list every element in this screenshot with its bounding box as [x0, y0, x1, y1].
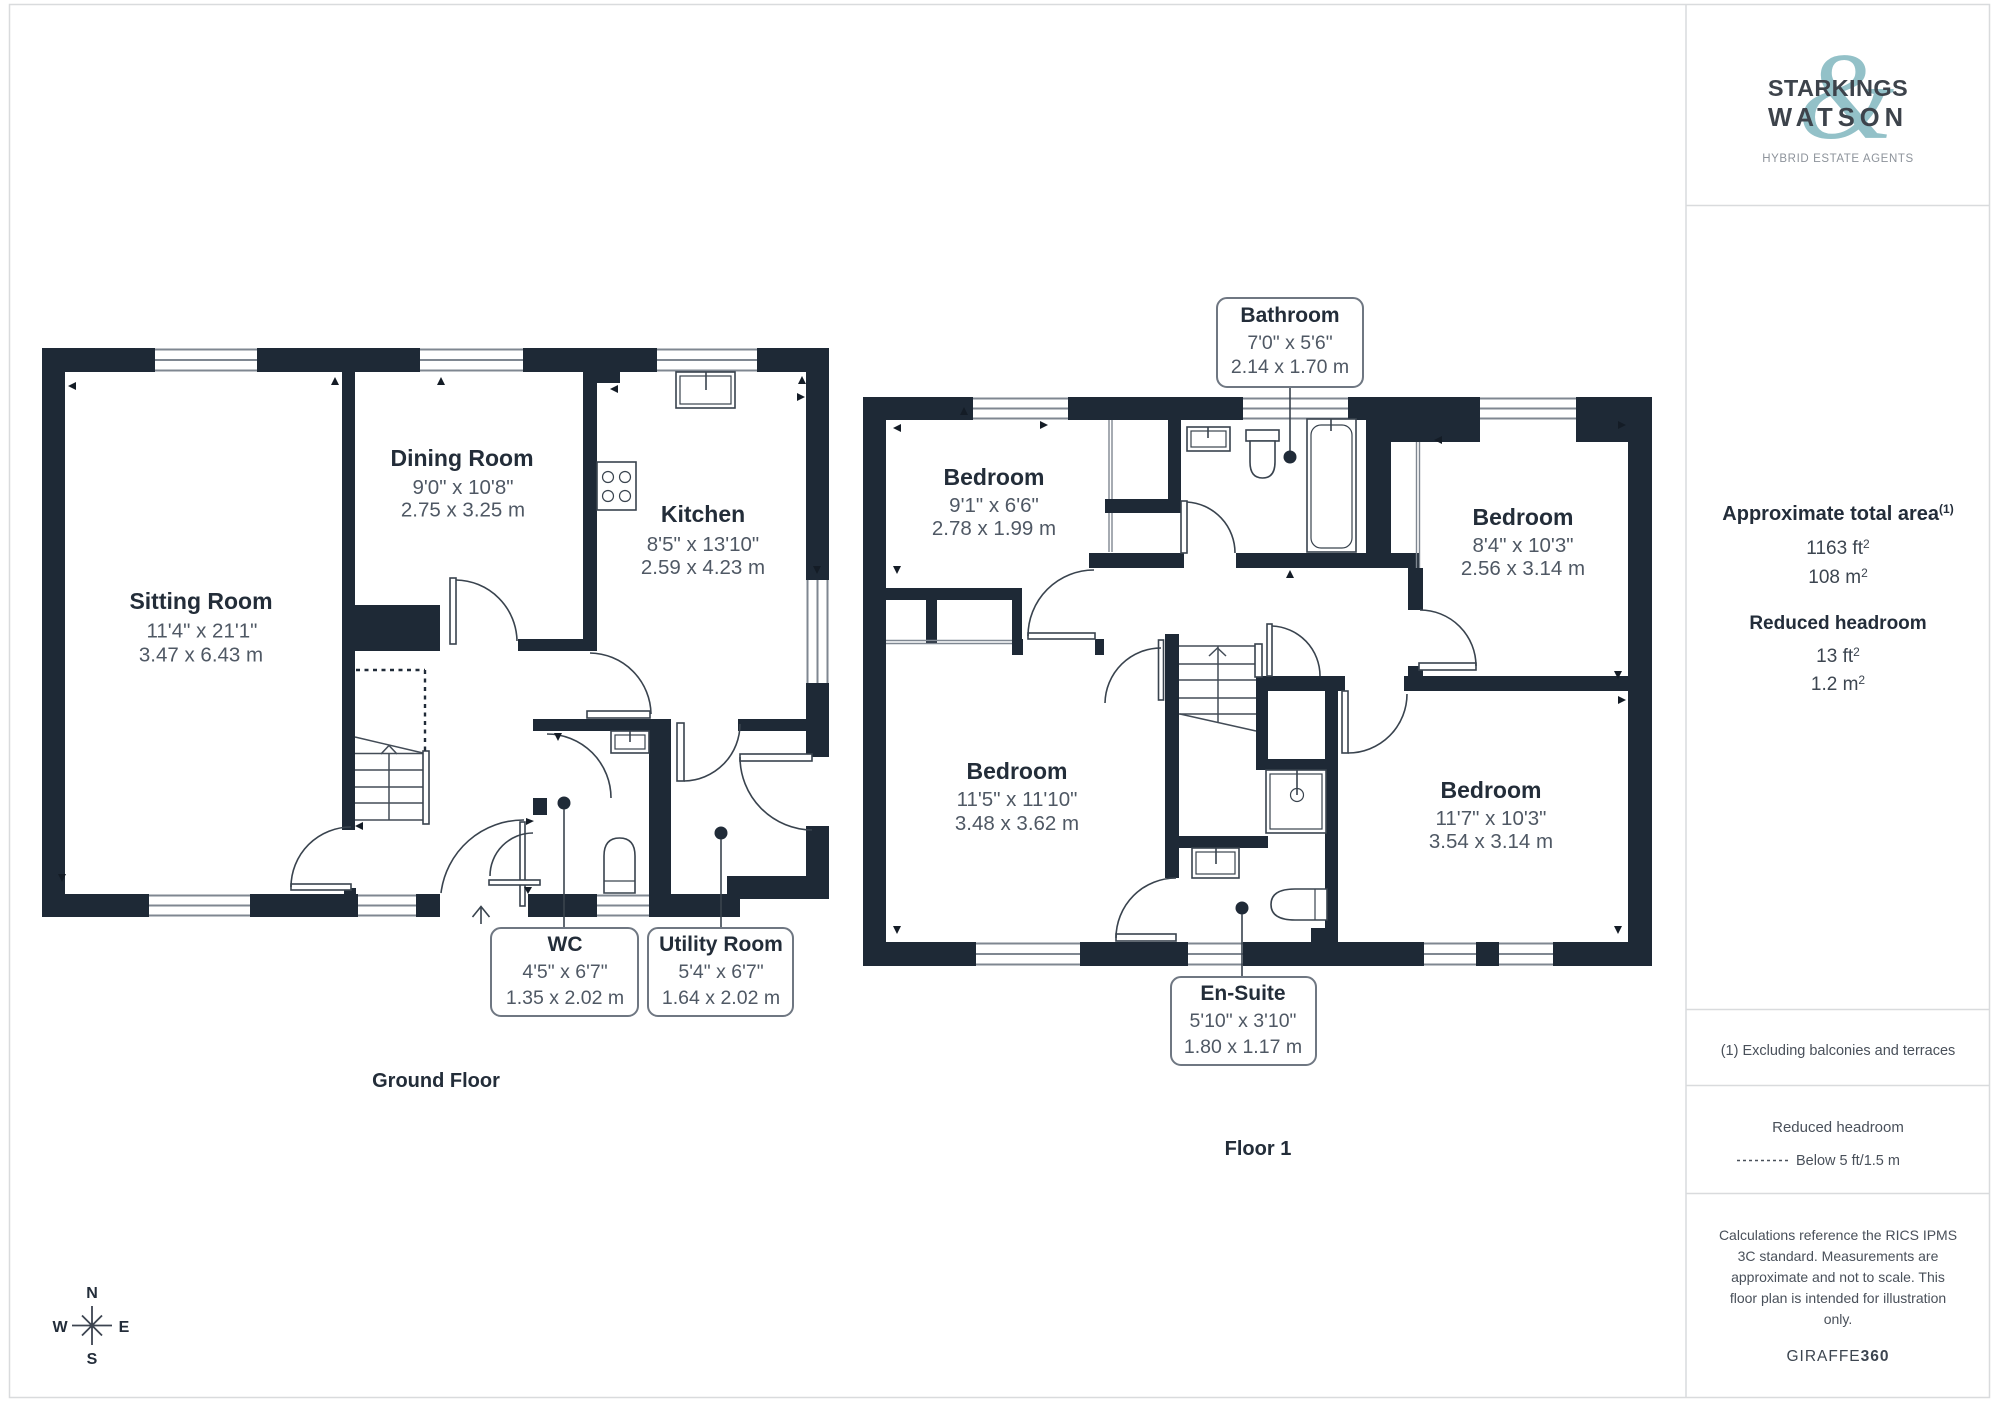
svg-text:approximate and not to scale.: approximate and not to scale. This — [1731, 1269, 1945, 1285]
svg-text:Utility Room: Utility Room — [659, 933, 783, 956]
svg-text:Reduced headroom: Reduced headroom — [1772, 1119, 1904, 1136]
svg-text:Ground Floor: Ground Floor — [372, 1070, 500, 1092]
svg-text:11'4" x 21'1": 11'4" x 21'1" — [147, 620, 258, 643]
svg-text:WATSON: WATSON — [1768, 104, 1908, 132]
svg-text:E: E — [119, 1319, 130, 1336]
svg-text:Below 5 ft/1.5 m: Below 5 ft/1.5 m — [1796, 1153, 1900, 1169]
svg-text:Approximate total area(1): Approximate total area(1) — [1722, 502, 1953, 525]
svg-text:En-Suite: En-Suite — [1200, 982, 1285, 1005]
svg-text:3C standard. Measurements are: 3C standard. Measurements are — [1738, 1248, 1939, 1264]
svg-text:108 m2: 108 m2 — [1808, 566, 1868, 588]
svg-text:Calculations reference the RIC: Calculations reference the RICS IPMS — [1719, 1227, 1957, 1243]
svg-text:Floor 1: Floor 1 — [1225, 1138, 1292, 1160]
svg-text:WC: WC — [548, 933, 583, 956]
svg-text:only.: only. — [1824, 1311, 1853, 1327]
svg-text:8'5" x 13'10": 8'5" x 13'10" — [647, 533, 759, 556]
svg-text:S: S — [87, 1351, 98, 1368]
svg-text:Bedroom: Bedroom — [1441, 777, 1542, 803]
svg-text:2.59 x 4.23 m: 2.59 x 4.23 m — [641, 556, 765, 579]
svg-text:5'4" x 6'7": 5'4" x 6'7" — [678, 961, 763, 983]
svg-text:3.48 x 3.62 m: 3.48 x 3.62 m — [955, 812, 1079, 835]
svg-text:7'0" x 5'6": 7'0" x 5'6" — [1247, 332, 1332, 354]
svg-text:1.2 m2: 1.2 m2 — [1811, 673, 1866, 695]
svg-text:Bedroom: Bedroom — [944, 464, 1045, 490]
svg-text:2.56 x 3.14 m: 2.56 x 3.14 m — [1461, 557, 1585, 580]
svg-text:9'0" x 10'8": 9'0" x 10'8" — [412, 476, 513, 499]
svg-text:2.75 x 3.25 m: 2.75 x 3.25 m — [401, 499, 525, 522]
svg-text:Bedroom: Bedroom — [1473, 504, 1574, 530]
svg-text:11'5" x 11'10": 11'5" x 11'10" — [957, 788, 1078, 811]
svg-text:1.80 x 1.17 m: 1.80 x 1.17 m — [1184, 1036, 1302, 1058]
svg-text:STARKINGS: STARKINGS — [1768, 75, 1908, 101]
svg-text:Bedroom: Bedroom — [967, 758, 1068, 784]
svg-text:9'1" x 6'6": 9'1" x 6'6" — [949, 494, 1039, 517]
svg-text:Sitting Room: Sitting Room — [129, 588, 272, 614]
svg-text:floor plan is intended for ill: floor plan is intended for illustration — [1730, 1290, 1946, 1306]
svg-text:2.78 x 1.99 m: 2.78 x 1.99 m — [932, 517, 1056, 540]
svg-text:11'7" x 10'3": 11'7" x 10'3" — [1436, 807, 1547, 830]
svg-text:Kitchen: Kitchen — [661, 501, 745, 527]
svg-text:1163 ft2: 1163 ft2 — [1806, 537, 1870, 559]
svg-text:8'4" x 10'3": 8'4" x 10'3" — [1472, 534, 1573, 557]
svg-text:2.14 x 1.70 m: 2.14 x 1.70 m — [1231, 356, 1349, 378]
svg-text:1.64 x 2.02 m: 1.64 x 2.02 m — [662, 987, 780, 1009]
svg-text:3.47 x 6.43 m: 3.47 x 6.43 m — [139, 644, 263, 667]
svg-text:GIRAFFE360: GIRAFFE360 — [1786, 1348, 1889, 1365]
svg-text:Dining Room: Dining Room — [390, 445, 533, 471]
svg-text:W: W — [52, 1319, 68, 1336]
svg-text:4'5" x 6'7": 4'5" x 6'7" — [522, 961, 607, 983]
svg-text:Bathroom: Bathroom — [1240, 304, 1339, 327]
svg-text:(1) Excluding balconies and te: (1) Excluding balconies and terraces — [1721, 1043, 1956, 1059]
svg-text:13 ft2: 13 ft2 — [1816, 645, 1860, 667]
svg-text:1.35 x 2.02 m: 1.35 x 2.02 m — [506, 987, 624, 1009]
svg-text:3.54 x 3.14 m: 3.54 x 3.14 m — [1429, 830, 1553, 853]
svg-text:5'10" x 3'10": 5'10" x 3'10" — [1190, 1010, 1297, 1032]
svg-text:HYBRID ESTATE AGENTS: HYBRID ESTATE AGENTS — [1762, 153, 1914, 165]
svg-text:Reduced headroom: Reduced headroom — [1749, 613, 1926, 634]
svg-text:N: N — [86, 1285, 98, 1302]
